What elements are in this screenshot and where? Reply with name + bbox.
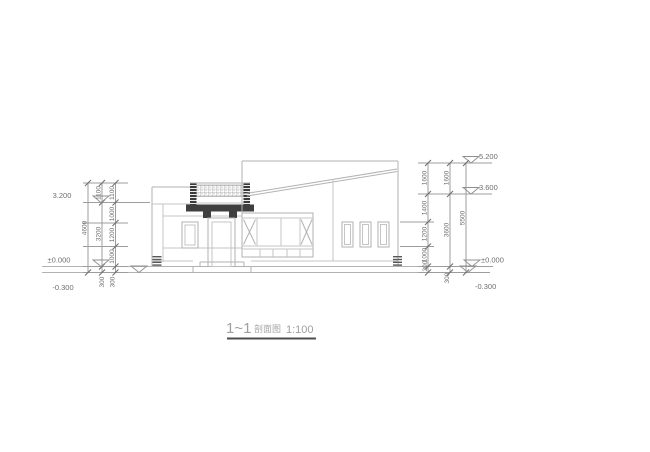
dim-label: 1000 xyxy=(422,247,429,262)
drawing-title-scale: 1:100 xyxy=(286,324,314,336)
foundation-dash xyxy=(153,256,162,257)
clerestory-leg-left xyxy=(203,212,211,219)
foundation-dash xyxy=(393,262,402,263)
elevation-triangle-icon xyxy=(463,157,479,164)
clerestory-left-post-cut xyxy=(190,184,197,205)
dim-label: 1600 xyxy=(422,170,429,185)
dim-label: 1000 xyxy=(109,249,116,264)
elevation-label: ±0.000 xyxy=(48,256,71,265)
right-block xyxy=(242,161,398,267)
drawing-title-name: 剖面图 xyxy=(254,323,281,334)
small-window-2-inner xyxy=(363,225,369,245)
elevation-label: 3.200 xyxy=(53,191,72,200)
dim-label: 1100 xyxy=(109,186,116,200)
small-window-3 xyxy=(378,222,389,247)
roof-slope-lower-line xyxy=(247,172,397,197)
section-drawing-sheet: 4600 1100 3200 300 1100 1000 1200 1000 3… xyxy=(0,0,650,452)
dim-label: 1000 xyxy=(109,206,116,221)
foundation-dash xyxy=(153,259,162,260)
clerestory-slab-cut xyxy=(186,205,254,212)
section-drawing-canvas: 4600 1100 3200 300 1100 1000 1200 1000 3… xyxy=(0,0,650,452)
foundation-dash xyxy=(393,259,402,260)
dim-label: 3200 xyxy=(96,226,103,241)
elevation-label: -0.300 xyxy=(52,283,73,292)
foundation-dash xyxy=(153,262,162,263)
left-block xyxy=(152,187,242,266)
dim-label: 4600 xyxy=(82,220,89,235)
elevation-triangle-icon xyxy=(93,260,109,267)
small-window-1 xyxy=(342,222,353,247)
clerestory-leg-right xyxy=(229,212,237,219)
small-window-2 xyxy=(360,222,371,247)
dimension-chains-right: 1600 1400 1200 1000 300 1600 3600 300 55… xyxy=(400,160,493,283)
foundation-dash xyxy=(393,264,402,265)
dimension-chains-left: 4600 1100 3200 300 1100 1000 1200 1000 3… xyxy=(82,180,151,287)
roof-slope-upper-line xyxy=(243,169,397,194)
dim-label: 1100 xyxy=(96,186,103,200)
clerestory-glazing-hatch xyxy=(197,185,244,197)
dim-label: 1200 xyxy=(109,227,116,242)
dim-label: 300 xyxy=(444,272,451,283)
dim-label: 1200 xyxy=(422,226,429,241)
dim-label: 300 xyxy=(422,260,429,271)
small-window-3-inner xyxy=(381,225,387,245)
drawing-title-mark: 1~1 xyxy=(226,320,251,337)
small-window-1-inner xyxy=(345,225,351,245)
dim-label: 300 xyxy=(99,276,106,287)
drawing-title: 1~1 剖面图 1:100 xyxy=(226,320,316,340)
elevation-label: -0.300 xyxy=(475,282,496,291)
door-leaf xyxy=(212,222,231,267)
elevation-label: 5.200 xyxy=(479,152,498,161)
foundation-dash xyxy=(153,264,162,265)
building-section xyxy=(42,161,472,273)
window-wall xyxy=(242,213,313,257)
small-windows xyxy=(342,222,389,247)
dim-label: 300 xyxy=(110,276,117,287)
dim-label: 1600 xyxy=(444,170,451,185)
elevation-label: 3.600 xyxy=(479,183,498,192)
foundation-dash xyxy=(393,256,402,257)
dim-label: 1400 xyxy=(422,200,429,215)
title-underline xyxy=(227,338,316,340)
left-window xyxy=(182,222,198,248)
dim-label: 5500 xyxy=(460,210,467,225)
elevation-label: ±0.000 xyxy=(481,256,504,265)
dim-label: 3600 xyxy=(444,222,451,237)
elevation-triangle-icon xyxy=(463,188,479,195)
ground xyxy=(42,267,472,273)
left-window-inner xyxy=(185,225,195,245)
window-wall-frame xyxy=(242,213,313,257)
